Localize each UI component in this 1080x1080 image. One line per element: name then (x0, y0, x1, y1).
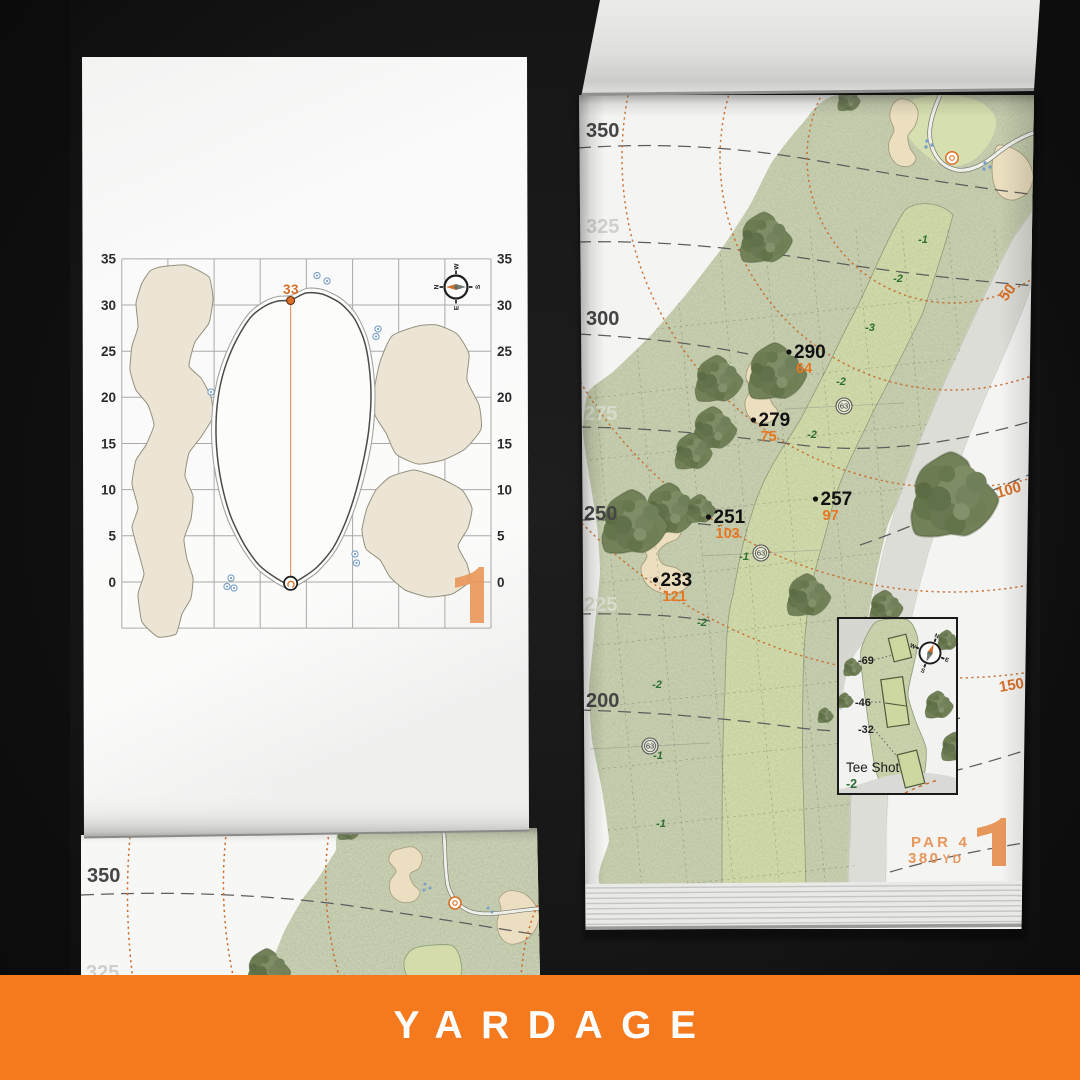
svg-text:121: 121 (663, 589, 687, 605)
svg-text:279: 279 (759, 410, 791, 431)
svg-text:S: S (475, 284, 482, 289)
svg-text:233: 233 (661, 570, 693, 591)
svg-text:-2: -2 (697, 617, 707, 629)
svg-text:-2: -2 (893, 273, 903, 285)
svg-text:75: 75 (761, 429, 777, 445)
svg-text:0: 0 (497, 575, 505, 590)
svg-text:10: 10 (497, 482, 512, 497)
svg-text:350: 350 (87, 865, 120, 887)
svg-text:-2: -2 (836, 376, 846, 388)
svg-text:N: N (433, 284, 440, 289)
svg-text:5: 5 (497, 529, 505, 544)
svg-text:35: 35 (101, 252, 117, 267)
svg-text:35: 35 (497, 252, 513, 267)
svg-text:63: 63 (840, 402, 848, 411)
svg-text:-3: -3 (865, 322, 875, 334)
svg-text:-46: -46 (855, 697, 871, 709)
svg-text:15: 15 (497, 436, 513, 451)
svg-text:25: 25 (497, 344, 513, 359)
svg-text:PAR 4: PAR 4 (911, 834, 970, 851)
svg-text:33: 33 (283, 282, 299, 297)
svg-text:-69: -69 (858, 655, 874, 667)
svg-text:97: 97 (823, 508, 839, 524)
svg-text:251: 251 (714, 507, 746, 528)
svg-text:-1: -1 (656, 818, 666, 830)
svg-text:0: 0 (108, 575, 116, 590)
svg-text:W: W (453, 263, 460, 270)
svg-text:-32: -32 (858, 724, 874, 736)
svg-text:Tee Shot: Tee Shot (846, 760, 900, 775)
svg-text:30: 30 (101, 298, 116, 313)
svg-text:5: 5 (108, 529, 116, 544)
svg-text:10: 10 (101, 482, 116, 497)
svg-text:30: 30 (497, 298, 512, 313)
svg-text:290: 290 (794, 342, 826, 363)
svg-text:-2: -2 (652, 679, 662, 691)
svg-text:25: 25 (101, 344, 117, 359)
svg-text:-1: -1 (918, 234, 928, 246)
svg-text:20: 20 (497, 390, 512, 405)
svg-text:-1: -1 (739, 551, 749, 563)
svg-text:20: 20 (101, 390, 116, 405)
svg-text:64: 64 (796, 361, 812, 377)
svg-text:-2: -2 (846, 777, 857, 791)
svg-text:63: 63 (757, 549, 765, 558)
svg-text:103: 103 (716, 526, 740, 542)
svg-text:257: 257 (821, 489, 853, 510)
svg-text:15: 15 (101, 436, 117, 451)
svg-text:-1: -1 (653, 750, 663, 762)
svg-text:YARDAGE: YARDAGE (394, 1004, 715, 1047)
svg-text:-2: -2 (807, 429, 817, 441)
svg-text:E: E (454, 305, 461, 310)
